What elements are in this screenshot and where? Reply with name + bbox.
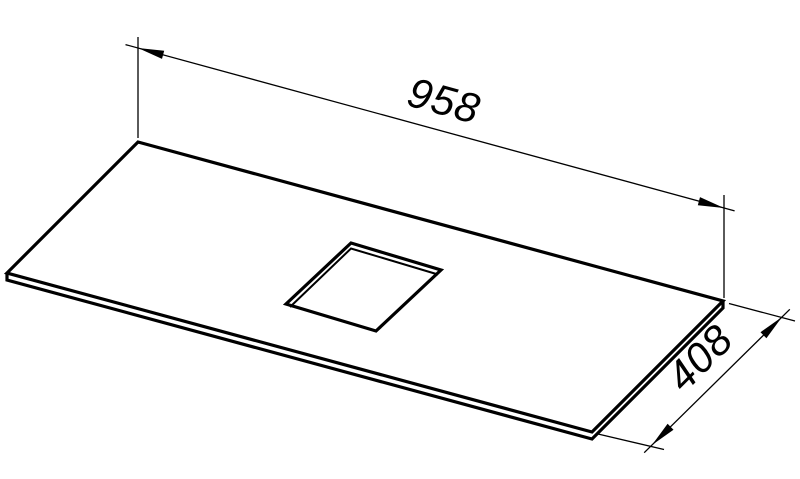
length-arrowhead-right <box>698 197 724 208</box>
panel-technical-drawing: 958 408 <box>0 0 800 479</box>
depth-extension-line-top <box>729 304 795 322</box>
depth-arrowhead-top <box>761 317 783 338</box>
technical-drawing-canvas: 958 408 <box>0 0 800 479</box>
depth-arrowhead-bottom <box>652 424 674 445</box>
drawing-geometry: 958 408 <box>7 37 795 453</box>
length-arrowhead-left <box>138 48 164 59</box>
depth-extension-line-bottom <box>598 434 664 450</box>
